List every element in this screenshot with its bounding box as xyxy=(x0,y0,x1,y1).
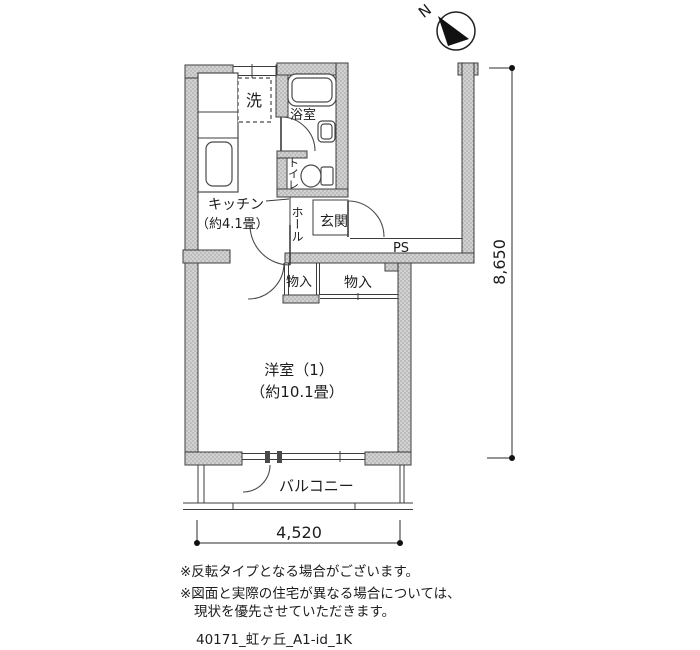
dim-bottom-dot-left xyxy=(194,540,200,546)
wall-left-cross-stub xyxy=(183,250,230,263)
entrance-door-arc xyxy=(348,201,384,237)
floor-plan-canvas: 洗 浴室 トイレ キッチン （約4.1畳） ホール 玄関 PS 物入 物入 洋室… xyxy=(0,0,700,650)
closet-right-label: 物入 xyxy=(344,275,372,291)
room-door-arc xyxy=(248,263,284,299)
wall-closet-right-notch xyxy=(385,263,398,271)
dim-right-dot-top xyxy=(509,65,515,71)
kitchen-sink xyxy=(206,142,232,186)
dim-bottom-dot-right xyxy=(397,540,403,546)
wall-room-right xyxy=(398,263,411,465)
wall-right-exterior xyxy=(462,63,474,263)
toilet-tank xyxy=(321,167,333,185)
wall-mid-horizontal xyxy=(285,253,474,263)
wall-closet-left-front xyxy=(283,295,319,303)
fixtures xyxy=(198,73,336,192)
note-line-1: ※反転タイプとなる場合がございます。 xyxy=(180,563,419,580)
toilet-bowl xyxy=(301,165,321,187)
north-compass: N xyxy=(415,1,475,50)
dimension-right: 8,650 xyxy=(487,65,515,461)
floor-plan-svg: 洗 浴室 トイレ キッチン （約4.1畳） ホール 玄関 PS 物入 物入 洋室… xyxy=(0,0,700,650)
dim-height-value: 8,650 xyxy=(490,239,509,285)
balcony-door-stile xyxy=(265,451,270,463)
kitchen-size-label: （約4.1畳） xyxy=(196,217,269,232)
note-line-2: ※図面と実際の住宅が異なる場合については、 xyxy=(180,586,461,602)
living-room-size-label: （約10.1畳） xyxy=(250,383,343,401)
balcony-door-stile xyxy=(277,451,282,463)
balcony-label: バルコニー xyxy=(279,477,354,495)
toilet-label: トイレ xyxy=(287,157,300,190)
dimension-bottom: 4,520 xyxy=(194,520,403,546)
entrance-label: 玄関 xyxy=(320,213,348,230)
wall-toilet-bottom xyxy=(277,189,348,197)
wall-left-exterior xyxy=(185,65,198,465)
wall-bath-right xyxy=(336,63,348,197)
balcony-door-arc xyxy=(243,465,270,492)
bathtub-inner xyxy=(292,78,332,102)
dim-right-dot-bottom xyxy=(509,455,515,461)
pipe-space-label: PS xyxy=(393,241,409,256)
wall-bottom-left xyxy=(185,452,242,465)
notes: ※反転タイプとなる場合がございます。 ※図面と実際の住宅が異なる場合については、… xyxy=(180,563,461,648)
washer-label: 洗 xyxy=(246,91,262,110)
plan-id-footer: 40171_虹ヶ丘_A1-id_1K xyxy=(196,632,353,648)
wall-bottom-right xyxy=(365,452,411,465)
living-room-label: 洋室（1） xyxy=(264,361,334,379)
north-label: N xyxy=(415,1,435,22)
note-line-3: 現状を優先させていただきます。 xyxy=(194,604,395,620)
kitchen-leader-line xyxy=(266,199,289,201)
hall-label: ホール xyxy=(290,206,304,242)
kitchen-label: キッチン xyxy=(208,197,264,213)
dim-width-value: 4,520 xyxy=(276,523,322,542)
closet-left-label: 物入 xyxy=(286,275,312,290)
bath-label: 浴室 xyxy=(290,107,316,123)
washbasin-inner xyxy=(321,124,332,139)
